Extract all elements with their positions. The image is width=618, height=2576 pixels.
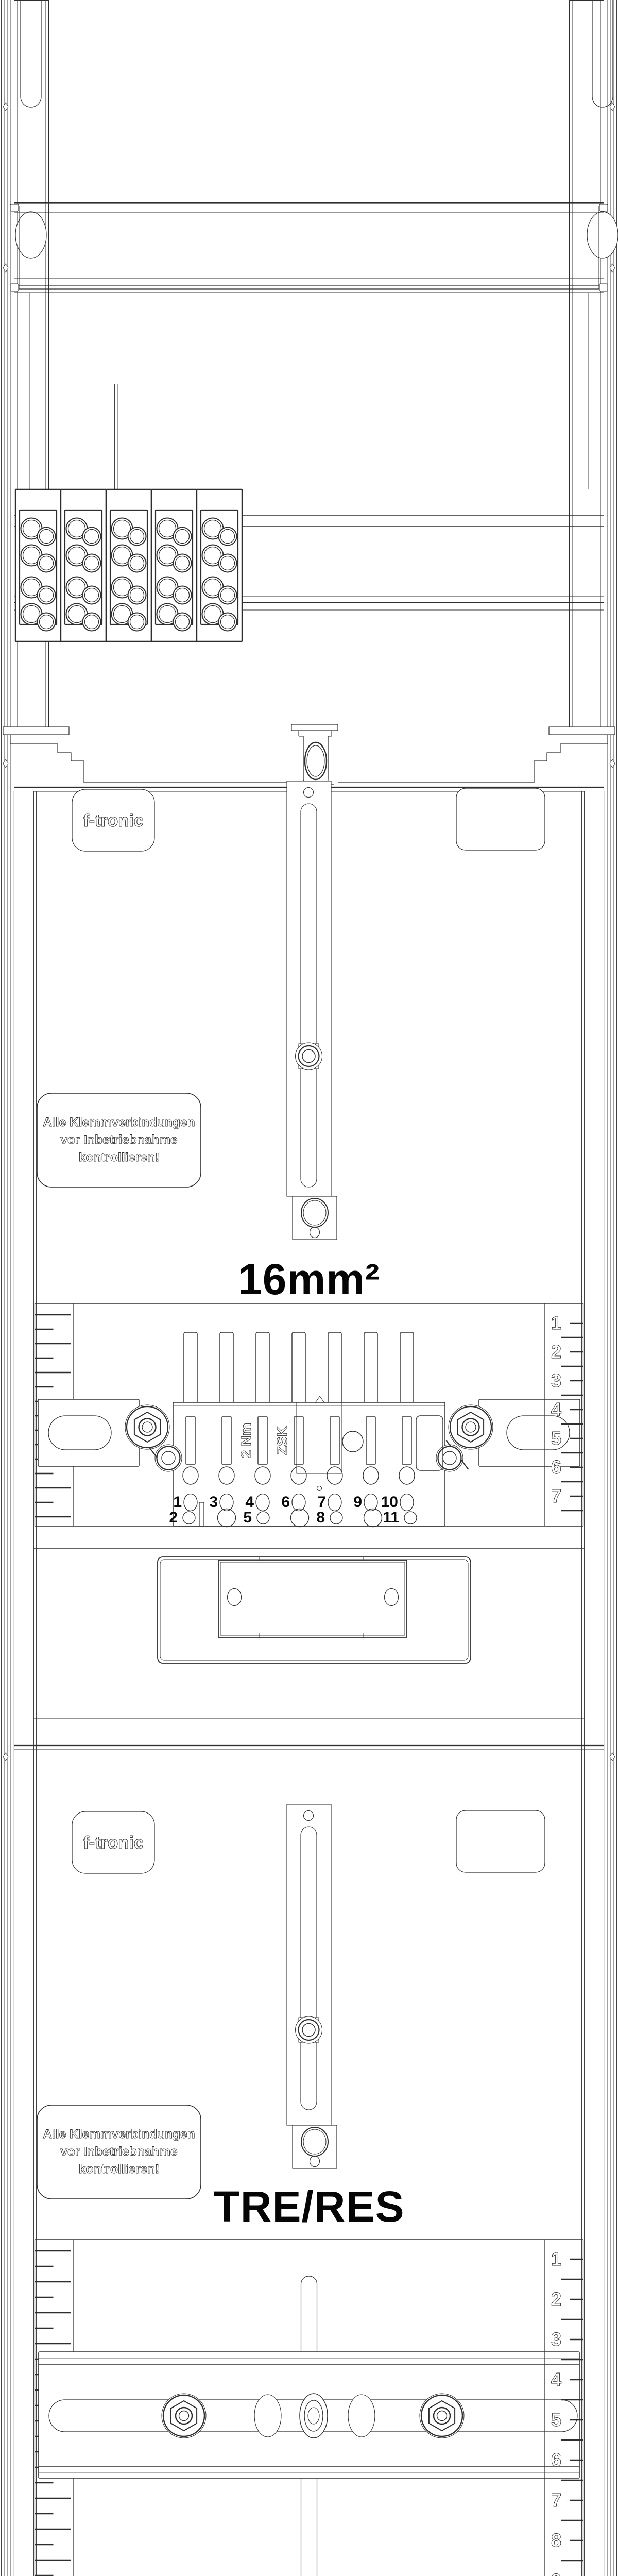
contact-pin [328,1332,341,1403]
terminal-number-lower: 11 [383,1509,399,1526]
center-post-hole [305,742,327,779]
ruler-number: 4 [551,1399,561,1420]
warning2-line-3: kontrollieren! [79,2162,160,2176]
terminal-number-upper: 10 [381,1494,398,1511]
warning2-line-2: vor Inbetriebnahme [60,2145,177,2159]
transition-step-left [10,735,291,783]
terminal-bore-small [128,586,146,604]
terminal-bore-small [219,586,237,604]
contact-pin [184,1332,197,1403]
size-label-16mm: 16mm² [238,1255,380,1303]
terminal-bore-small [128,554,146,572]
strip-slot [330,1417,339,1464]
screw-plate [293,2125,337,2168]
transition-ledge-right [549,727,615,735]
warning-line-3: kontrollieren! [79,1150,160,1164]
ruler-number: 7 [551,1485,561,1506]
transition-step-right [338,735,608,783]
strip-slot [258,1417,267,1464]
profile-notch [3,759,8,768]
cabinet-technical-drawing-page: 13467910258111234567 12345678910 f-troni… [0,0,618,2576]
type-label-zsk: ZSK [274,1426,290,1455]
brand-logo-text-2: f-tronic [83,1833,143,1853]
ruler-number: 6 [551,1456,561,1478]
function-label-tre-res: TRE/RES [213,2182,404,2231]
terminal-bore-small [83,554,101,572]
terminal-bore-small [38,613,56,631]
crossband-tab [599,284,608,291]
ruler-number: 1 [551,2248,561,2269]
profile-notch [610,759,615,768]
terminal-number-lower: 5 [243,1509,252,1526]
terminal-bore-small [174,554,192,572]
rail-slot-top-right [592,0,613,107]
warning2-line-1: Alle Klemmverbindungen [43,2127,195,2141]
screw-plate [293,1196,337,1240]
center-slot-upper [301,2276,317,2364]
terminal-bore-small [38,528,56,546]
terminal-bore-small [38,554,56,572]
strip-slot [294,1417,303,1464]
center-channel [287,1804,331,2125]
terminal-block [106,489,151,641]
strip-slot [222,1417,231,1464]
terminal-block [61,489,106,641]
slot-cap [348,2395,375,2437]
terminal-bore-small [174,528,192,546]
terminal-block-row [15,489,242,641]
terminal-bore-small [128,613,146,631]
cable-clamp-window [218,1560,407,1637]
ruler-number: 6 [551,2449,561,2470]
adjust-arm-right [479,1399,580,1466]
blank-plate-2 [456,1810,545,1872]
terminal-bore-small [128,528,146,546]
warning-line-1: Alle Klemmverbindungen [43,1115,195,1129]
terminal-number-upper: 1 [173,1494,182,1511]
crossband-tab [10,204,19,211]
ruler-number: 5 [551,1428,561,1449]
ruler-number: 3 [551,1370,561,1391]
center-post-neck [299,731,332,736]
contact-pin [220,1332,233,1403]
terminal-bore-small [38,586,56,604]
terminal-bore-small [83,613,101,631]
terminal-number-upper: 6 [281,1494,290,1511]
strip-slot [402,1417,411,1464]
ruler-number: 4 [551,2369,561,2390]
terminal-block [197,489,242,641]
slot-cap [254,2395,281,2437]
rail-hole-left [15,212,46,258]
crossband-tab [10,284,19,291]
ruler-number: 5 [551,2409,561,2430]
contact-pin [256,1332,269,1403]
terminal-number-upper: 3 [209,1494,218,1511]
terminal-bore-small [219,613,237,631]
terminal-number-upper: 7 [317,1494,326,1511]
transition-ledge-left [3,727,69,735]
terminal-number-lower: 2 [169,1509,178,1526]
ruler-number: 1 [551,1312,561,1333]
strip-slot [186,1417,195,1464]
profile-notch [610,1753,615,1761]
terminal-block [15,489,61,641]
channel-screw-ring [296,1043,322,1070]
crossband-tab [599,204,608,211]
ruler-number: 7 [551,2489,561,2511]
torque-label: 2 Nm [238,1423,254,1458]
center-channel [287,781,331,1196]
rail-hole-right [587,212,618,258]
brand-logo-text: f-tronic [83,811,143,831]
terminal-block [151,489,197,641]
strip-notch-mark [315,1396,324,1403]
ruler-number: 2 [551,2289,561,2310]
terminal-bore-small [219,554,237,572]
profile-notch [3,103,8,111]
center-slot-lower [301,2469,317,2576]
terminal-bore-small [219,528,237,546]
profile-notch [3,264,8,272]
terminal-bore-small [174,586,192,604]
contact-pin [364,1332,377,1403]
meter-cabinet-drawing: 13467910258111234567 12345678910 f-troni… [0,0,618,2576]
profile-notch [610,264,615,272]
terminal-bore-small [83,586,101,604]
strip-slot [366,1417,375,1464]
ruler-number: 2 [551,1341,561,1362]
adjust-arm-left [38,1399,139,1466]
terminal-bore-small [83,528,101,546]
mount-ring [438,1447,461,1470]
terminal-number-upper: 9 [353,1494,362,1511]
center-post-head [291,724,338,731]
ruler-number: 9 [551,2570,561,2576]
blank-plate [456,788,545,850]
ruler-number: 3 [551,2329,561,2350]
mount-ring [157,1447,180,1470]
contact-pin [400,1332,414,1403]
terminal-bore-small [174,613,192,631]
channel-screw-ring [296,2016,322,2043]
contact-pin [292,1332,305,1403]
profile-notch [3,1753,8,1761]
terminal-number-upper: 4 [245,1494,254,1511]
terminal-number-lower: 8 [316,1509,325,1526]
warning-line-2: vor Inbetriebnahme [60,1133,177,1147]
rail-slot-top-left [21,0,41,107]
ruler-number: 8 [551,2530,561,2551]
